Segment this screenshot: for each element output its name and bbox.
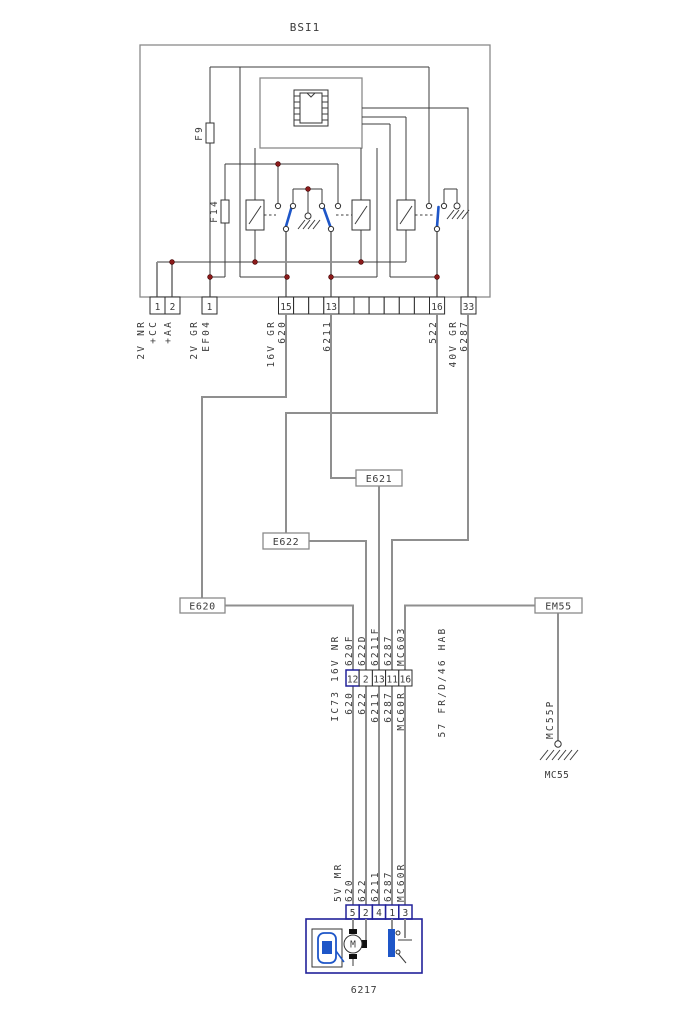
background [0, 0, 700, 1020]
bsi-pin-16: 16 [431, 302, 443, 313]
comp-pin-3: 3 [403, 908, 409, 919]
ic73-pin-11: 11 [386, 675, 398, 686]
ic73-pin-16: 16 [400, 675, 412, 686]
fuse-f14: F14 [209, 199, 229, 223]
label-622-comp: 622 [357, 878, 368, 902]
label-620-comp: 620 [344, 878, 355, 902]
relay-2 [352, 200, 370, 230]
bsi-pin-ef04: 1 [207, 302, 213, 313]
comp-pin-2: 2 [363, 908, 369, 919]
bsi-pin-33: 33 [463, 302, 474, 313]
label-mc603: MC603 [396, 626, 407, 666]
label-622-below: 622 [357, 691, 368, 715]
label-6211-comp: 6211 [370, 870, 381, 902]
comp-6217-label: 6217 [351, 985, 377, 996]
bsi-pin-15: 15 [280, 302, 291, 313]
fuse-f9-label: F9 [194, 125, 205, 141]
wire-label-mc55p: MC55P [545, 699, 556, 739]
label-620-below: 620 [344, 691, 355, 715]
wire-label-aa: +AA [163, 320, 174, 344]
ic73-pin-2: 2 [363, 675, 369, 686]
wiring-diagram-page: BSI1 F9 [0, 0, 700, 1020]
ground-mc55-label: MC55 [545, 770, 569, 781]
car-icon [312, 929, 344, 967]
comp-pin-5: 5 [350, 908, 356, 919]
splice-e621-label: E621 [366, 474, 392, 485]
label-6211f: 6211F [370, 626, 381, 666]
ic73-label: IC73 16V NR [330, 634, 341, 721]
label-6287-above: 6287 [383, 634, 394, 666]
fuse-f9: F9 [194, 123, 214, 143]
label-6211-below: 6211 [370, 691, 381, 723]
wire-label-40v-gr: 40V GR [448, 320, 459, 368]
comp-connector: 5 2 4 1 3 [346, 905, 412, 919]
bsi-title: BSI1 [290, 21, 321, 34]
splice-e622-label: E622 [273, 537, 299, 548]
bsi-pin-1: 1 [155, 302, 161, 313]
label-6287-below: 6287 [383, 691, 394, 723]
bsi-pin-13: 13 [326, 302, 337, 313]
label-620f: 620F [344, 634, 355, 666]
relay-1 [246, 200, 264, 230]
ic73-pin-12: 12 [347, 675, 358, 686]
wiring-diagram: BSI1 F9 [0, 0, 700, 1020]
chip-icon [294, 90, 328, 126]
wire-label-ef04: EF04 [201, 320, 212, 352]
label-6287-comp: 6287 [383, 870, 394, 902]
bsi-pin-2: 2 [170, 302, 176, 313]
label-622d: 622D [357, 634, 368, 666]
relay-3 [397, 200, 415, 230]
comp-pin-1: 1 [389, 908, 395, 919]
fuse-f14-label: F14 [209, 199, 220, 223]
comp-pin-4: 4 [376, 908, 382, 919]
ic73-pin-13: 13 [373, 675, 384, 686]
label-mc60r-comp: MC60R [396, 862, 407, 902]
label-5v-mr: 5V MR [333, 862, 344, 902]
label-mc60r-below: MC60R [396, 691, 407, 731]
harness-label: 57 FR/D/46 HAB [437, 627, 448, 738]
wire-label-16v-gr: 16V GR [266, 320, 277, 368]
wire-label-2v-nr: 2V NR [136, 320, 147, 360]
splice-e620-label: E620 [189, 602, 215, 613]
splice-em55-label: EM55 [545, 602, 571, 613]
motor-letter: M [350, 940, 356, 951]
wire-label-2v-gr: 2V GR [189, 320, 200, 360]
wire-label-cc: +CC [148, 320, 159, 344]
